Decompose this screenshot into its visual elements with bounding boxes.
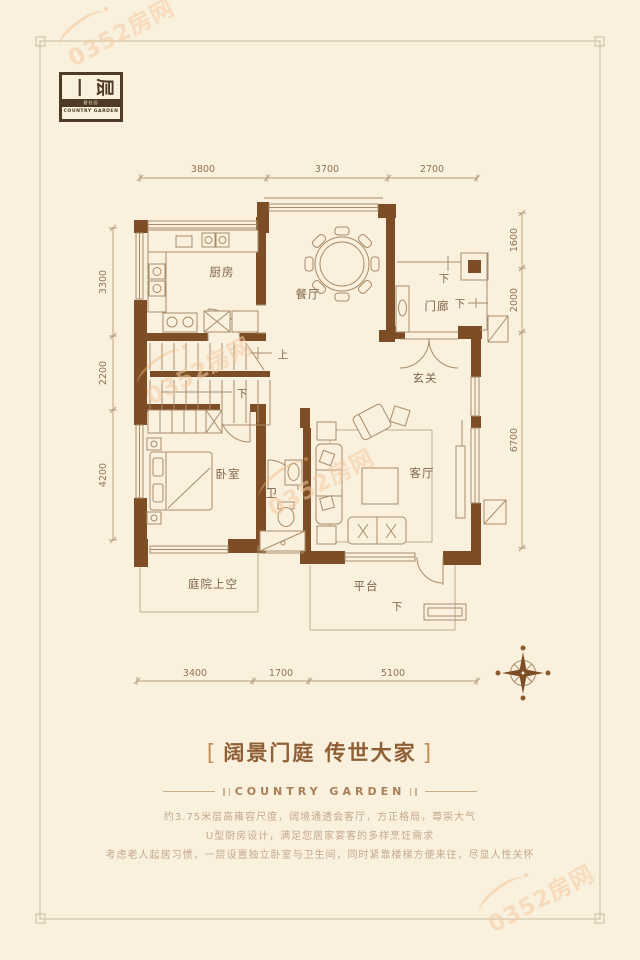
floor-char-2: 层 xyxy=(91,79,116,97)
title-bracket-left: [ xyxy=(207,741,218,766)
terrace-down-label: 下 xyxy=(392,601,403,613)
room-label-dining: 餐厅 xyxy=(296,287,321,301)
room-label-kitchen: 厨房 xyxy=(210,265,235,279)
room-label-living: 客厅 xyxy=(410,466,435,480)
subtitle-row: COUNTRY GARDEN xyxy=(0,785,640,798)
stair-up-label: 上 xyxy=(278,349,289,361)
room-label-porch: 门廊 xyxy=(425,299,450,313)
dim-top-1: 3800 xyxy=(191,164,215,175)
page-title: [阔景门庭 传世大家] xyxy=(0,737,640,767)
floorplan-page: 3800 3700 2700 3400 1700 5100 3300 2200 … xyxy=(0,0,640,960)
room-label-bedroom: 卧室 xyxy=(216,467,241,481)
brand-en-label: COUNTRY GARDEN xyxy=(62,107,120,117)
dim-right-2: 2000 xyxy=(509,288,520,312)
dim-right-1: 1600 xyxy=(509,228,520,252)
compass-icon xyxy=(496,646,551,701)
dim-top-3: 2700 xyxy=(420,164,444,175)
dim-left-1: 3300 xyxy=(98,270,109,294)
deco-cap-left xyxy=(223,788,230,796)
title-text: 阔景门庭 传世大家 xyxy=(223,741,416,765)
room-label-foyer: 玄关 xyxy=(413,371,438,385)
kitchen-furniture xyxy=(148,230,258,332)
brand-cn-bar: 碧桂园 xyxy=(62,99,120,107)
dim-left-3: 4200 xyxy=(98,463,109,487)
porch-down-label-2: 下 xyxy=(455,298,466,310)
porch-down-label-1: 下 xyxy=(439,273,450,285)
deco-line-right xyxy=(425,791,477,792)
description: 约3.75米层高雍容尺度，阔境通透会客厅，方正格局，尊崇大气 U型厨房设计，满足… xyxy=(0,808,640,865)
room-label-courtyard: 庭院上空 xyxy=(188,577,238,591)
footer: [阔景门庭 传世大家] COUNTRY GARDEN 约3.75米层高雍容尺度，… xyxy=(0,737,640,865)
dim-left-2: 2200 xyxy=(98,361,109,385)
dim-bottom-1: 3400 xyxy=(183,668,207,679)
description-line-3: 考虑老人起居习惯，一层设置独立卧室与卫生间，同时紧靠楼梯方便来往，尽显人性关怀 xyxy=(0,846,640,865)
porch-and-edges xyxy=(140,253,508,630)
dim-bottom-3: 5100 xyxy=(381,668,405,679)
deco-line-left xyxy=(163,791,215,792)
deco-cap-right xyxy=(410,788,417,796)
floor-badge-label: 一 层 xyxy=(62,75,120,99)
stair-down-label: 下 xyxy=(237,388,248,400)
floor-char-1: 一 xyxy=(66,79,91,97)
description-line-2: U型厨房设计，满足您居家宴客的多样烹饪需求 xyxy=(0,827,640,846)
floor-badge: 一 层 碧桂园 COUNTRY GARDEN xyxy=(59,72,123,122)
subtitle-text: COUNTRY GARDEN xyxy=(235,785,406,798)
dim-right-3: 6700 xyxy=(509,428,520,452)
description-line-1: 约3.75米层高雍容尺度，阔境通透会客厅，方正格局，尊崇大气 xyxy=(0,808,640,827)
title-bracket-right: ] xyxy=(423,741,434,766)
dim-bottom-2: 1700 xyxy=(269,668,293,679)
dim-top-2: 3700 xyxy=(315,164,339,175)
room-label-terrace: 平台 xyxy=(354,579,379,593)
bedroom-furniture xyxy=(147,410,222,524)
